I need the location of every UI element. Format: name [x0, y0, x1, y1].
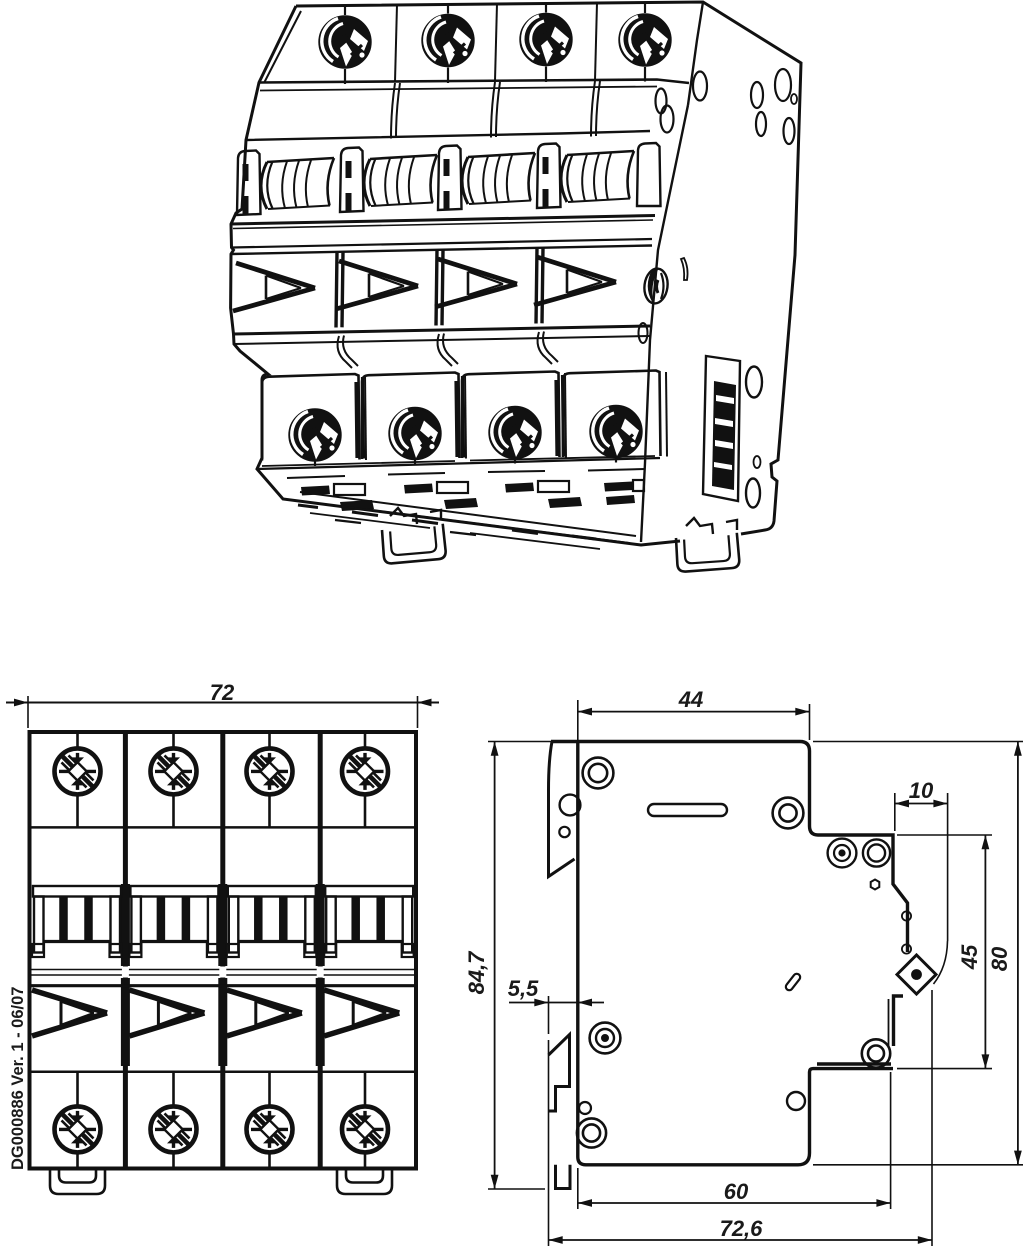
svg-text:60: 60 — [724, 1179, 749, 1204]
svg-text:45: 45 — [957, 944, 982, 970]
svg-text:10: 10 — [909, 778, 934, 803]
svg-text:DG000886 Ver. 1 - 06/07: DG000886 Ver. 1 - 06/07 — [9, 987, 27, 1170]
svg-text:44: 44 — [678, 687, 703, 712]
svg-text:5,5: 5,5 — [508, 976, 539, 1001]
svg-text:72,6: 72,6 — [720, 1216, 764, 1241]
svg-text:72: 72 — [210, 680, 235, 705]
svg-text:80: 80 — [987, 946, 1012, 971]
svg-text:84,7: 84,7 — [464, 950, 489, 995]
